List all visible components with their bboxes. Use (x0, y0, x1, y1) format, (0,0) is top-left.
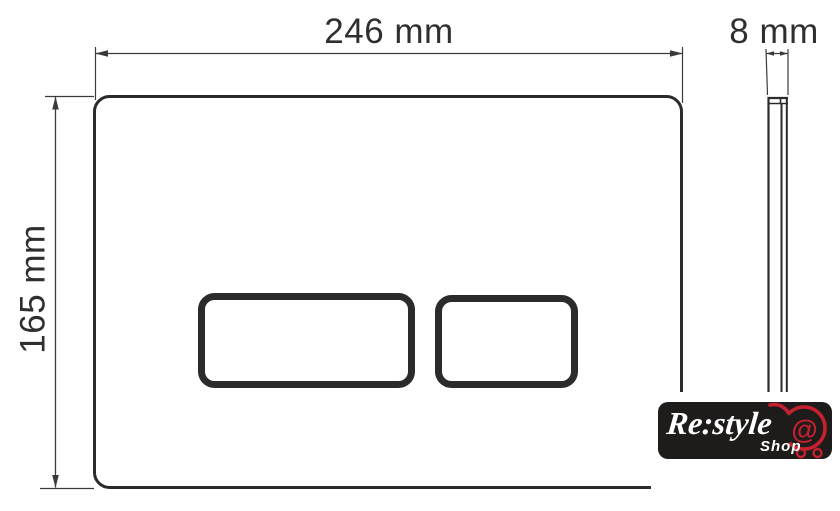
side-view (768, 97, 789, 392)
height-dimension-label: 165 mm (17, 224, 50, 353)
arrow-down-icon (52, 475, 59, 488)
arrow-up-icon (52, 97, 59, 110)
plate-outline (95, 97, 682, 488)
depth-dimension-label: 8 mm (729, 15, 819, 48)
logo-brand-text: Re:style (665, 404, 774, 442)
width-dimension (95, 47, 683, 103)
depth-dimension (766, 49, 788, 95)
technical-drawing-page: 246 mm 8 mm 165 mm @ Re:style Shop (0, 0, 840, 511)
large-flush-button-outline (202, 297, 412, 385)
arrow-left-icon (95, 50, 108, 57)
cart-wheel-right (814, 449, 822, 457)
arrow-right-icon (670, 50, 683, 57)
restyle-shop-logo: @ Re:style Shop (658, 402, 832, 459)
logo-shop-text: Shop (760, 439, 802, 455)
small-flush-button-outline (439, 299, 575, 385)
depth-extension-line-left (766, 49, 768, 95)
arrow-left-small-icon (766, 51, 774, 56)
arrow-right-small-icon (780, 51, 788, 56)
width-dimension-label: 246 mm (324, 15, 453, 48)
